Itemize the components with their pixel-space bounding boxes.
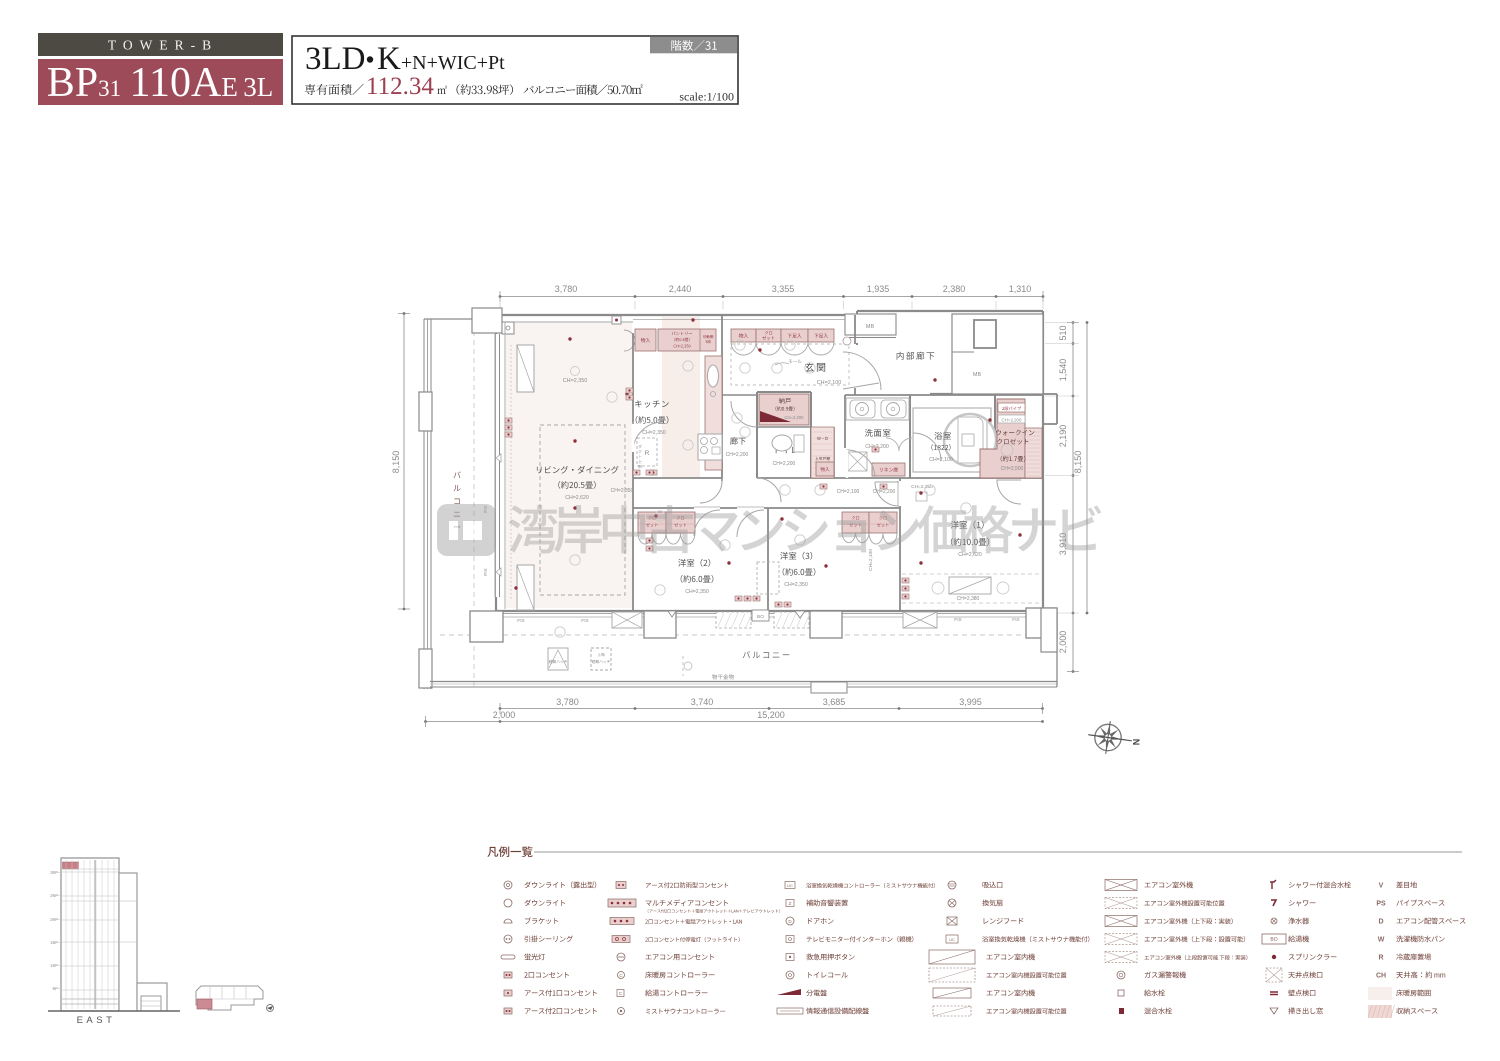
svg-text:FIX: FIX [517,618,525,624]
svg-text:C: C [619,991,623,996]
svg-text:3,780: 3,780 [555,284,578,294]
svg-text:EAST: EAST [77,1015,116,1026]
svg-text:W: W [1378,937,1385,944]
svg-text:CH=2,500: CH=2,500 [1001,466,1024,472]
svg-text:112.34: 112.34 [366,73,434,100]
svg-text:Z: Z [789,901,792,906]
svg-text:UC: UC [787,883,793,888]
svg-text:scale:1/100: scale:1/100 [679,90,734,104]
svg-text:CH=2,200: CH=2,200 [773,461,796,467]
svg-text:1,935: 1,935 [867,284,890,294]
svg-text:TOWER-B: TOWER-B [108,38,218,53]
svg-text:UC: UC [949,937,955,942]
svg-text:CH=2,350: CH=2,350 [563,378,587,384]
svg-text:MB: MB [973,372,982,378]
svg-text:CH=2,100: CH=2,100 [837,489,860,495]
svg-text:MB: MB [866,324,875,330]
svg-text:3,355: 3,355 [772,284,795,294]
svg-text:C: C [619,973,623,978]
svg-text:N: N [1131,739,1141,746]
svg-text:CH=2,380: CH=2,380 [957,596,980,602]
svg-text:CH=2,200: CH=2,200 [1002,418,1022,423]
svg-text:2,190: 2,190 [1058,425,1068,448]
svg-text:CH=2,350: CH=2,350 [611,488,634,494]
svg-text:8,150: 8,150 [1073,451,1083,474]
svg-text:PS: PS [1376,901,1386,908]
svg-text:V: V [1379,883,1384,890]
svg-text:15,200: 15,200 [757,710,785,720]
svg-text:CH=2,200: CH=2,200 [726,452,749,458]
svg-text:BO: BO [757,614,764,620]
svg-text:R: R [1378,955,1383,962]
svg-text:mm: mm [1434,973,1446,980]
svg-text:CH=2,200: CH=2,200 [873,489,896,495]
svg-text:2,000: 2,000 [1058,631,1068,654]
svg-text:CH=2,620: CH=2,620 [958,552,982,558]
svg-text:FIX: FIX [954,617,962,623]
svg-text:3LD: 3LD [305,41,366,77]
svg-text:3,995: 3,995 [959,697,982,707]
svg-text:2,000: 2,000 [493,710,516,720]
svg-text:CH=2,620: CH=2,620 [565,495,589,501]
svg-text:FIX: FIX [1012,617,1020,623]
svg-text:2,440: 2,440 [669,284,692,294]
svg-text:CH=2,100: CH=2,100 [868,549,874,571]
svg-text:3,685: 3,685 [823,697,846,707]
svg-text:CH=2,350: CH=2,350 [784,582,808,588]
svg-text:510: 510 [1058,325,1068,340]
svg-text:3,780: 3,780 [556,697,579,707]
svg-text:CH=2,350: CH=2,350 [685,589,709,595]
svg-text:CH=2,100: CH=2,100 [817,380,841,386]
svg-text:D: D [788,919,792,924]
svg-text:D: D [1378,919,1383,926]
svg-text:R: R [645,450,650,457]
svg-text:BO: BO [1270,937,1277,943]
svg-text:1,540: 1,540 [1058,359,1068,382]
svg-text:8,150: 8,150 [391,451,401,474]
svg-text:CH: CH [1376,973,1386,980]
svg-text:CH=2,350: CH=2,350 [642,430,666,436]
svg-text:3,740: 3,740 [691,697,714,707]
svg-text:FIX: FIX [483,567,489,575]
svg-text:1,310: 1,310 [1009,284,1032,294]
svg-text:FIX: FIX [581,618,589,624]
svg-text:CH=2,200: CH=2,200 [785,415,805,420]
svg-text:2,380: 2,380 [943,284,966,294]
